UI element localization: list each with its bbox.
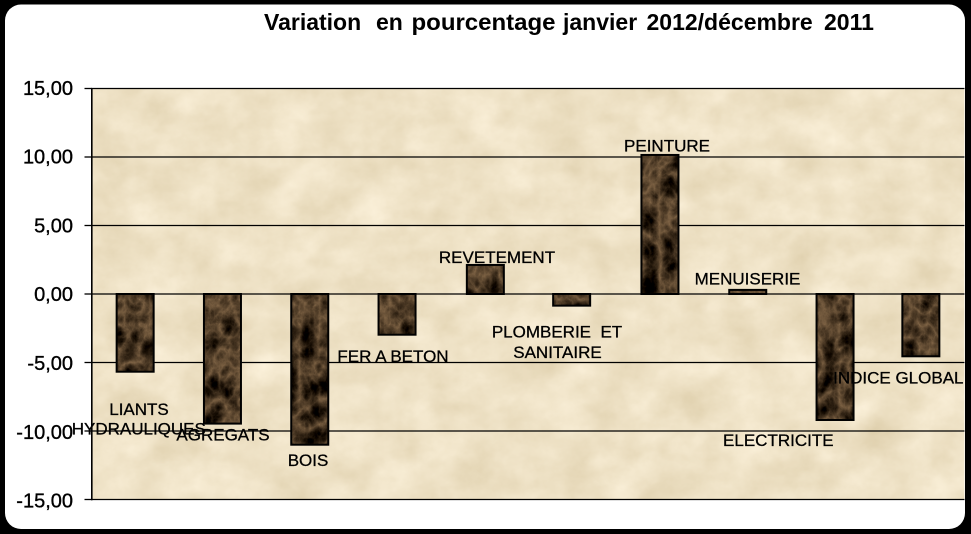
svg-text:Variationenpourcentagejanvier2: Variationenpourcentagejanvier2012/décemb… — [264, 9, 874, 35]
svg-text:REVETEMENT: REVETEMENT — [439, 248, 555, 267]
svg-text:PEINTURE: PEINTURE — [624, 137, 710, 156]
svg-text:FER A BETON: FER A BETON — [337, 347, 448, 366]
svg-text:-5,00: -5,00 — [27, 353, 73, 375]
svg-text:ELECTRICITE: ELECTRICITE — [723, 431, 834, 450]
svg-text:PLOMBERIE ET: PLOMBERIE ET — [492, 322, 622, 341]
svg-text:INDICE GLOBAL: INDICE GLOBAL — [833, 369, 963, 388]
svg-text:LIANTS: LIANTS — [109, 400, 169, 419]
svg-text:SANITAIRE: SANITAIRE — [513, 343, 601, 362]
svg-text:0,00: 0,00 — [34, 284, 73, 306]
svg-text:5,00: 5,00 — [34, 215, 73, 237]
svg-text:BOIS: BOIS — [288, 451, 329, 470]
svg-text:AGREGATS: AGREGATS — [176, 426, 269, 445]
svg-text:MENUISERIE: MENUISERIE — [695, 270, 801, 289]
svg-text:-10,00: -10,00 — [16, 422, 73, 444]
svg-text:-15,00: -15,00 — [16, 491, 73, 513]
svg-text:10,00: 10,00 — [23, 147, 73, 169]
svg-text:15,00: 15,00 — [23, 78, 73, 100]
